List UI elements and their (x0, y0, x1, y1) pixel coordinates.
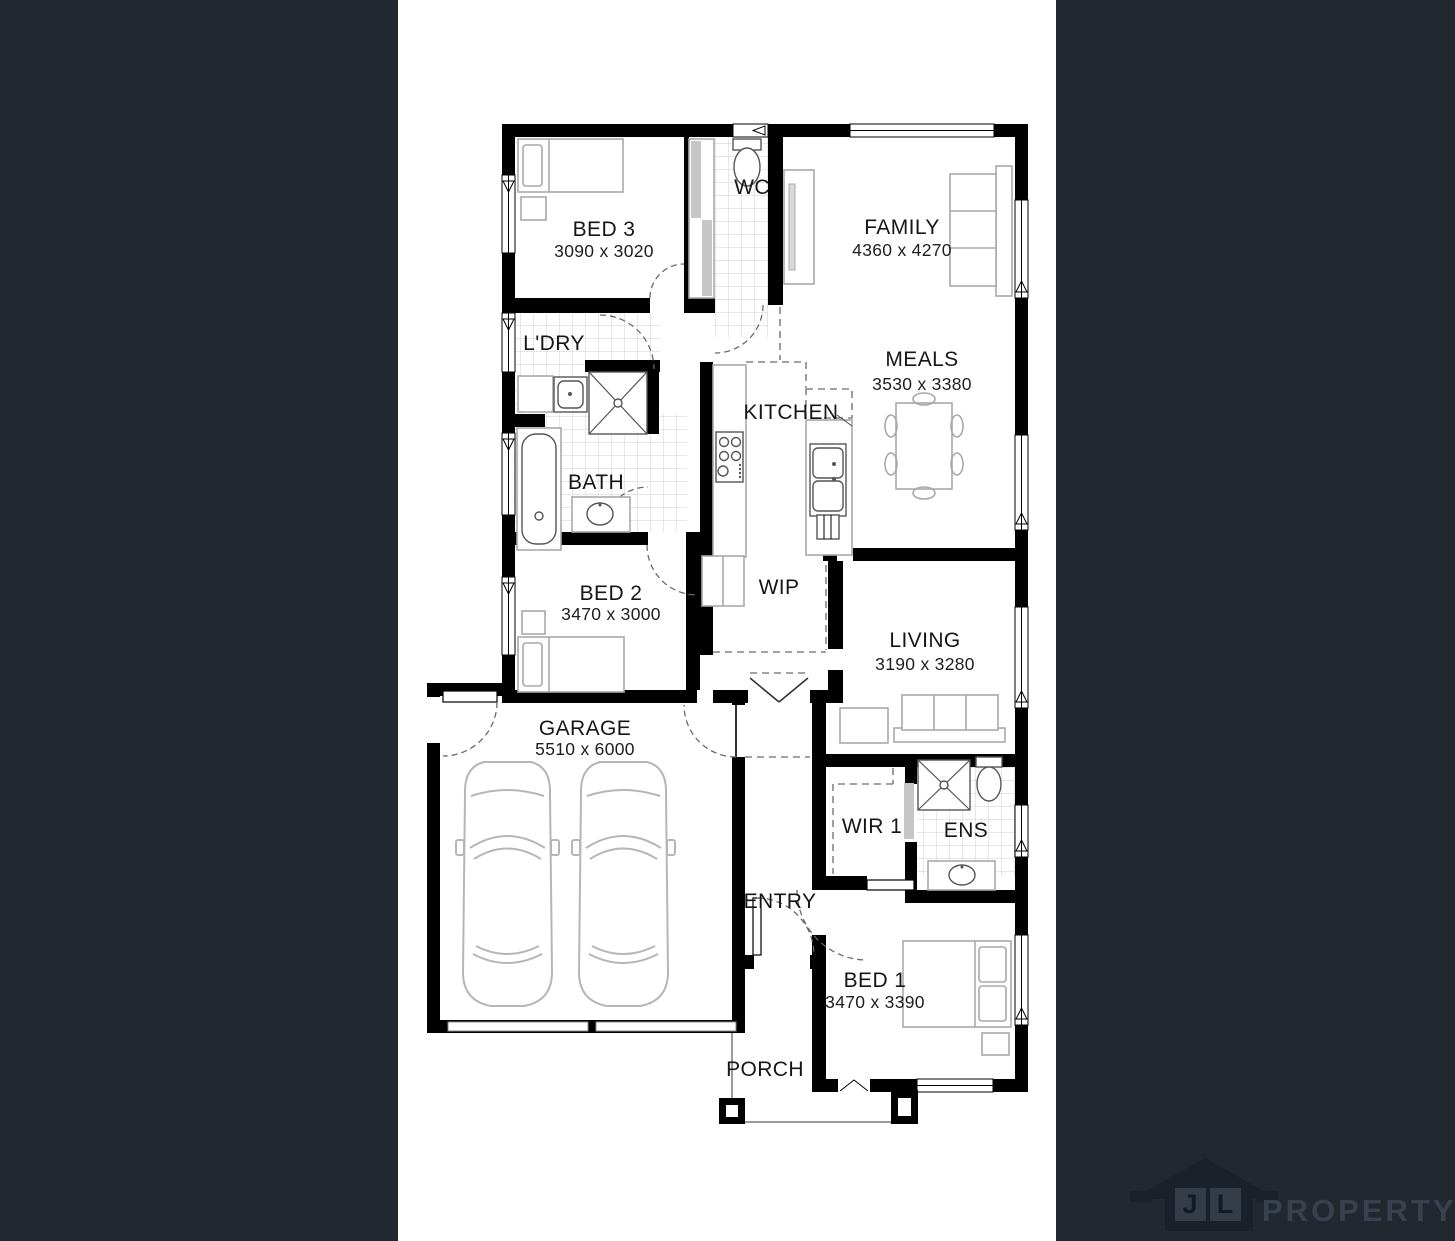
room-label-entry: ENTRY (744, 890, 817, 913)
kitchen-bench (713, 365, 746, 557)
room-dims-bed2: 3470 x 3000 (561, 604, 661, 624)
room-label-bath: BATH (568, 471, 624, 494)
bed1-door (867, 880, 914, 890)
logo-letter-j: J (1182, 1189, 1197, 1219)
floor-plan-drawing: BED 3 3090 x 3020 WC FAMILY 4360 x 4270 … (0, 0, 1455, 1241)
pantry-shelf (702, 556, 744, 606)
laundry-bench (518, 376, 587, 412)
garage-side-door (443, 691, 497, 702)
bath-tub (517, 428, 561, 550)
ensuite-toilet (976, 757, 1002, 801)
bath-shower (589, 372, 647, 434)
family-sofa (950, 166, 1012, 296)
room-dims-meals: 3530 x 3380 (872, 374, 972, 394)
room-dims-living: 3190 x 3280 (875, 654, 975, 674)
bed3-side-table (521, 197, 546, 220)
room-label-wc: WC (734, 176, 770, 199)
ensuite-slider-door (904, 783, 914, 839)
window-meals (1015, 435, 1028, 530)
window-family-side (1015, 200, 1028, 298)
window-bed3 (502, 175, 515, 253)
room-label-ldry: L'DRY (523, 332, 585, 355)
laundry-trough (554, 377, 587, 412)
window-ensuite (1015, 805, 1028, 857)
room-label-living: LIVING (889, 629, 960, 652)
window-wc-vent (733, 124, 768, 137)
room-label-family: FAMILY (864, 216, 940, 239)
living-ottoman (840, 708, 888, 743)
room-label-bed3: BED 3 (573, 218, 636, 241)
kitchen-island (806, 420, 852, 555)
room-label-porch: PORCH (726, 1058, 804, 1081)
window-bed2 (502, 577, 515, 655)
meals-dining-table (885, 393, 963, 499)
window-laundry (502, 313, 515, 372)
logo-letter-l: L (1217, 1189, 1234, 1219)
room-dims-bed3: 3090 x 3020 (554, 241, 654, 261)
window-bath (502, 433, 515, 515)
window-bed1-side (1015, 935, 1028, 1025)
logo-brand-text: PROPERTY (1262, 1193, 1455, 1228)
room-dims-bed1: 3470 x 3390 (825, 992, 925, 1012)
room-label-meals: MEALS (885, 348, 958, 371)
bed2-side-table (522, 611, 545, 634)
window-living (1015, 607, 1028, 708)
room-label-garage: GARAGE (539, 717, 631, 740)
room-dims-garage: 5510 x 6000 (535, 739, 635, 759)
room-label-wip: WIP (759, 576, 800, 599)
room-dims-family: 4360 x 4270 (852, 240, 952, 260)
ensuite-shower (918, 760, 970, 810)
bed1-side-table (982, 1033, 1009, 1055)
room-label-bed2: BED 2 (580, 582, 643, 605)
room-label-wir1: WIR 1 (842, 815, 902, 838)
room-label-kitchen: KITCHEN (744, 401, 839, 424)
family-tv-unit (784, 170, 814, 284)
room-label-bed1: BED 1 (844, 969, 907, 992)
cooktop-icon (716, 432, 743, 482)
ensuite-vanity (928, 861, 995, 890)
window-family-top (850, 124, 994, 137)
room-label-ens: ENS (944, 819, 988, 842)
bath-vanity (572, 497, 630, 532)
floor-plan-page: BED 3 3090 x 3020 WC FAMILY 4360 x 4270 … (0, 0, 1455, 1241)
window-bed1-bottom (917, 1079, 993, 1092)
